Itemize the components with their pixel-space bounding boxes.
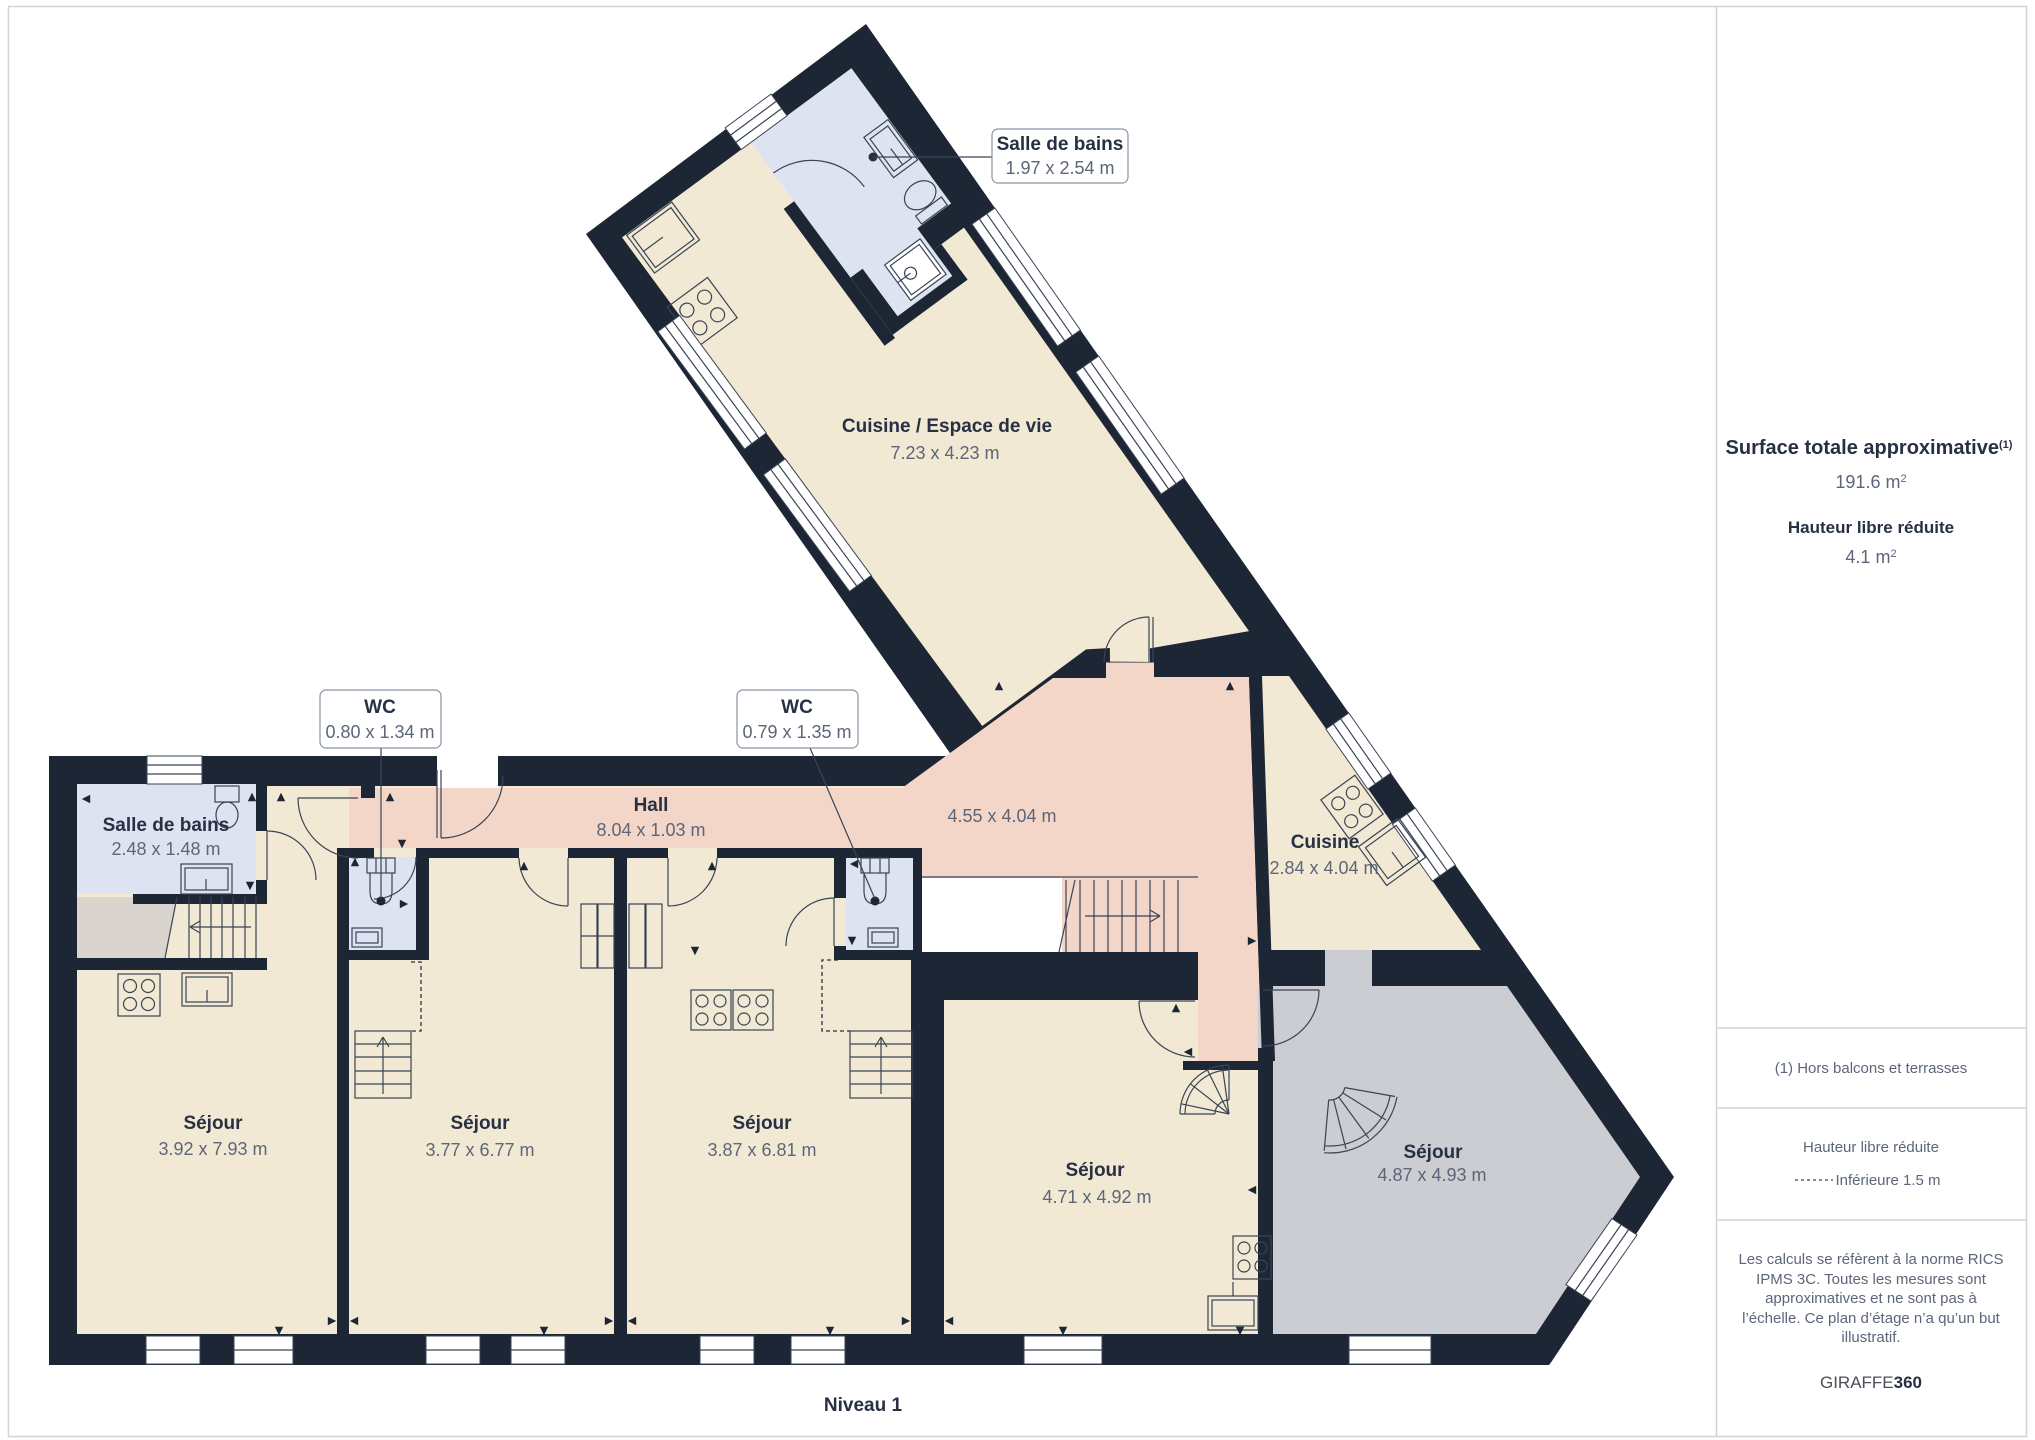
svg-text:Séjour: Séjour bbox=[1065, 1160, 1125, 1181]
svg-text:2.48 x 1.48 m: 2.48 x 1.48 m bbox=[111, 839, 220, 859]
svg-text:Salle de bains: Salle de bains bbox=[103, 815, 230, 836]
svg-text:WC: WC bbox=[781, 697, 813, 718]
svg-text:Séjour: Séjour bbox=[450, 1113, 510, 1134]
svg-text:7.23 x 4.23 m: 7.23 x 4.23 m bbox=[890, 443, 999, 463]
svg-text:illustratif.: illustratif. bbox=[1841, 1329, 1900, 1346]
svg-text:4.71 x 4.92 m: 4.71 x 4.92 m bbox=[1042, 1187, 1151, 1207]
svg-text:Inférieure 1.5 m: Inférieure 1.5 m bbox=[1835, 1172, 1940, 1189]
svg-text:Niveau 1: Niveau 1 bbox=[824, 1395, 903, 1416]
svg-text:Cuisine: Cuisine bbox=[1291, 832, 1360, 853]
svg-text:4.87 x 4.93 m: 4.87 x 4.93 m bbox=[1377, 1165, 1486, 1185]
svg-text:0.80 x 1.34 m: 0.80 x 1.34 m bbox=[325, 722, 434, 742]
svg-text:l’échelle. Ce plan d’étage n’a: l’échelle. Ce plan d’étage n’a qu’un but bbox=[1742, 1310, 2001, 1327]
svg-text:Cuisine / Espace de vie: Cuisine / Espace de vie bbox=[842, 416, 1052, 437]
svg-text:Séjour: Séjour bbox=[1403, 1142, 1463, 1163]
svg-text:1.97 x 2.54 m: 1.97 x 2.54 m bbox=[1005, 158, 1114, 178]
svg-text:4.55 x 4.04 m: 4.55 x 4.04 m bbox=[947, 806, 1056, 826]
svg-text:8.04 x 1.03 m: 8.04 x 1.03 m bbox=[596, 820, 705, 840]
svg-text:Surface totale approximative(1: Surface totale approximative(1) bbox=[1726, 437, 2013, 459]
svg-text:Séjour: Séjour bbox=[732, 1113, 792, 1134]
svg-text:Hall: Hall bbox=[634, 795, 669, 816]
svg-text:GIRAFFE360: GIRAFFE360 bbox=[1820, 1373, 1922, 1392]
svg-text:Les calculs se réfèrent à la n: Les calculs se réfèrent à la norme RICS bbox=[1738, 1251, 2003, 1268]
svg-text:Salle de bains: Salle de bains bbox=[997, 134, 1124, 155]
svg-text:3.87 x 6.81 m: 3.87 x 6.81 m bbox=[707, 1140, 816, 1160]
svg-text:2.84 x 4.04 m: 2.84 x 4.04 m bbox=[1269, 858, 1378, 878]
svg-text:WC: WC bbox=[364, 697, 396, 718]
svg-text:3.77 x 6.77 m: 3.77 x 6.77 m bbox=[425, 1140, 534, 1160]
svg-text:approximatives et ne sont pas: approximatives et ne sont pas à bbox=[1765, 1290, 1977, 1307]
svg-text:191.6 m2: 191.6 m2 bbox=[1835, 472, 1906, 492]
svg-text:Hauteur libre réduite: Hauteur libre réduite bbox=[1803, 1139, 1939, 1156]
svg-text:(1) Hors balcons et terrasses: (1) Hors balcons et terrasses bbox=[1775, 1060, 1968, 1077]
svg-text:4.1 m2: 4.1 m2 bbox=[1845, 547, 1896, 567]
svg-text:Séjour: Séjour bbox=[183, 1113, 243, 1134]
svg-text:0.79 x 1.35 m: 0.79 x 1.35 m bbox=[742, 722, 851, 742]
svg-text:3.92 x 7.93 m: 3.92 x 7.93 m bbox=[158, 1139, 267, 1159]
svg-text:IPMS 3C. Toutes les mesures so: IPMS 3C. Toutes les mesures sont bbox=[1756, 1271, 1987, 1288]
svg-text:Hauteur libre réduite: Hauteur libre réduite bbox=[1788, 518, 1954, 537]
